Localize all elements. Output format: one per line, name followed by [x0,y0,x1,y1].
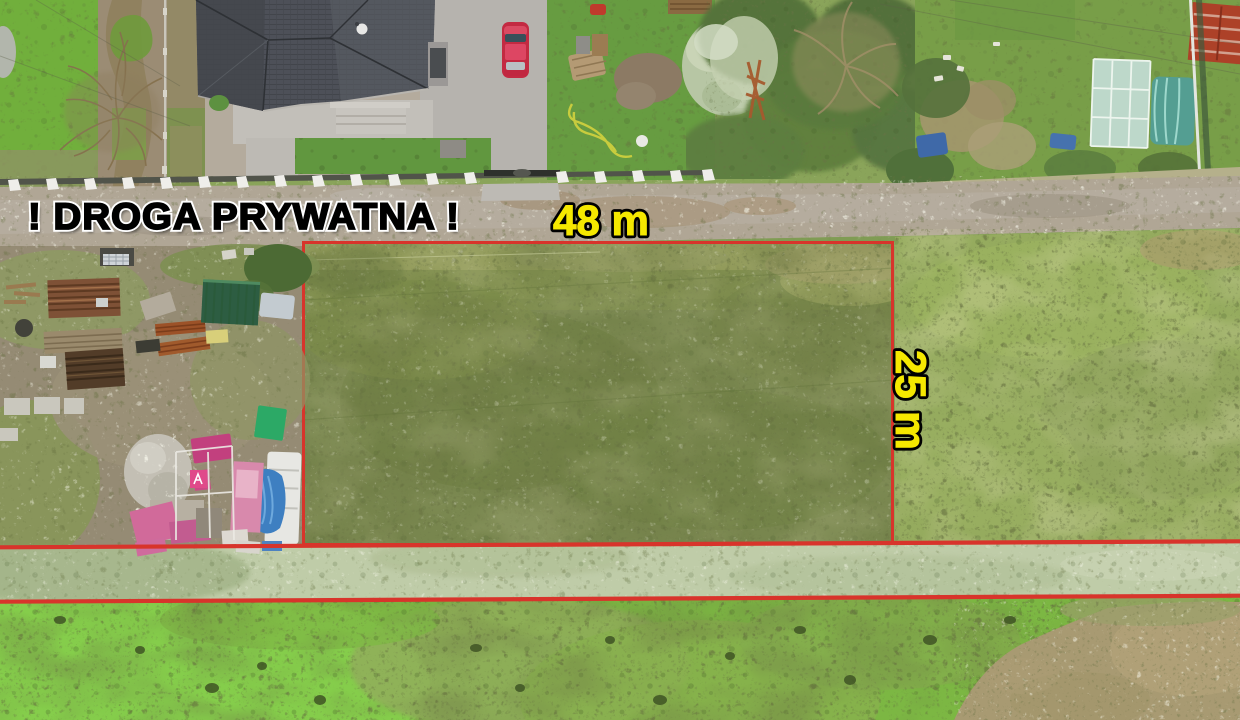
svg-text:25 m: 25 m [886,350,934,450]
svg-text:! DROGA PRYWATNA !: ! DROGA PRYWATNA ! [28,196,460,237]
svg-text:48 m: 48 m [553,197,649,245]
